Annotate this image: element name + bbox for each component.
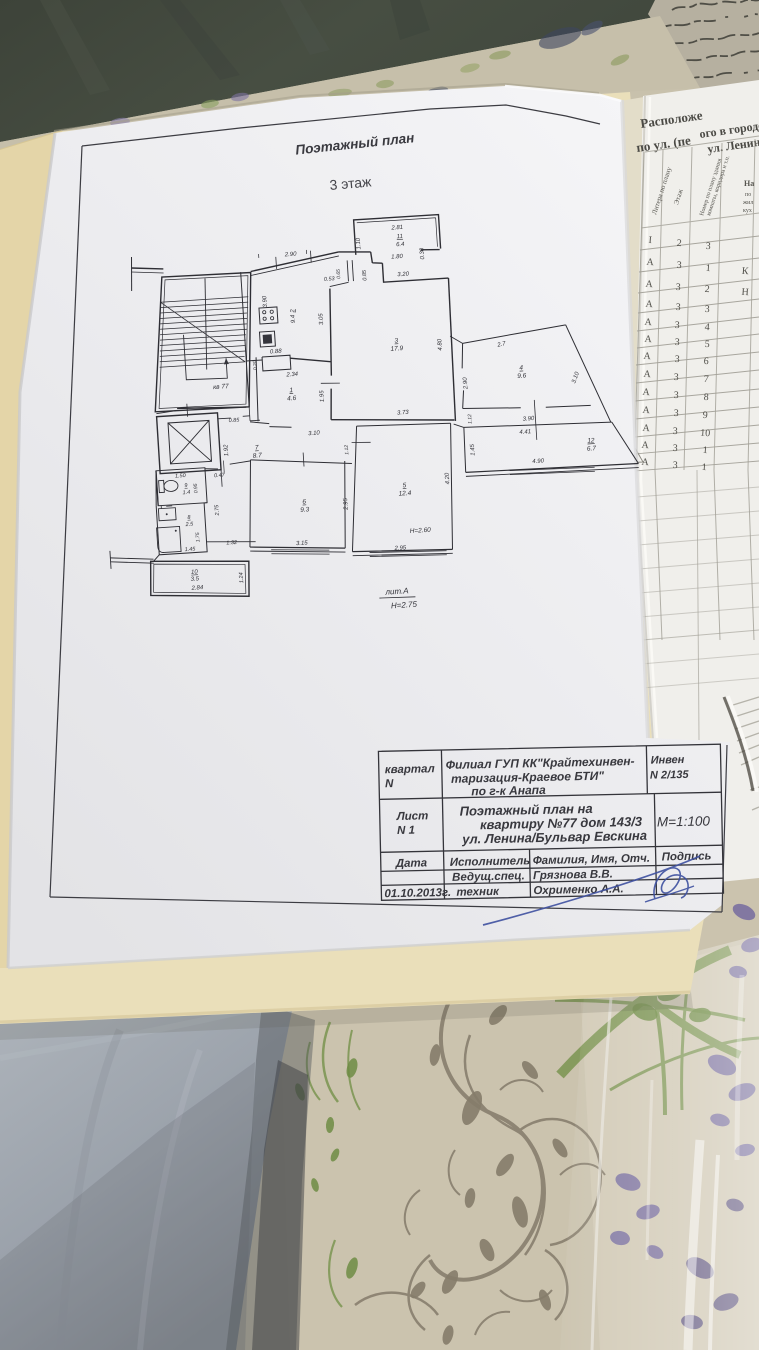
svg-text:3.90: 3.90: [262, 295, 269, 308]
svg-text:Исполнитель: Исполнитель: [450, 855, 531, 869]
svg-text:11: 11: [396, 234, 403, 240]
svg-text:10: 10: [700, 428, 711, 440]
svg-text:2.84: 2.84: [190, 585, 204, 592]
svg-text:1.12: 1.12: [344, 445, 351, 455]
svg-text:2.81: 2.81: [390, 225, 403, 232]
svg-text:3: 3: [672, 426, 678, 437]
svg-text:3.10: 3.10: [308, 430, 321, 437]
svg-text:3: 3: [673, 390, 679, 401]
svg-text:3: 3: [704, 304, 710, 315]
svg-text:N 2/135: N 2/135: [650, 769, 690, 782]
svg-text:3: 3: [675, 282, 681, 293]
svg-text:1: 1: [701, 462, 707, 473]
svg-text:0.88: 0.88: [270, 349, 283, 356]
svg-text:0.53: 0.53: [324, 276, 336, 283]
svg-text:Грязнова В.В.: Грязнова В.В.: [533, 868, 613, 882]
svg-text:К: К: [741, 266, 749, 277]
svg-text:2.5: 2.5: [184, 522, 194, 529]
svg-text:12: 12: [587, 437, 595, 444]
svg-text:1.32: 1.32: [226, 540, 237, 547]
svg-text:Н=2.75: Н=2.75: [391, 600, 418, 611]
svg-text:5: 5: [704, 339, 710, 350]
svg-text:0.47: 0.47: [214, 472, 226, 479]
svg-text:кв 77: кв 77: [213, 383, 229, 391]
svg-text:1.45: 1.45: [184, 546, 196, 553]
svg-text:01.10.2013г.: 01.10.2013г.: [384, 887, 451, 900]
svg-text:жил: жил: [742, 200, 753, 206]
svg-text:1.24: 1.24: [239, 572, 246, 583]
svg-text:3.90: 3.90: [522, 416, 535, 423]
svg-text:Дата: Дата: [395, 857, 428, 870]
svg-text:лит.А: лит.А: [384, 586, 409, 596]
svg-text:4: 4: [704, 322, 710, 333]
svg-text:М=1:100: М=1:100: [657, 813, 711, 829]
svg-text:0.95: 0.95: [193, 483, 200, 493]
svg-text:1.50: 1.50: [175, 473, 187, 480]
svg-text:техник: техник: [456, 886, 500, 899]
svg-text:2.34: 2.34: [285, 372, 299, 379]
svg-text:1.12: 1.12: [467, 414, 474, 424]
svg-text:0.20: 0.20: [252, 360, 259, 370]
svg-text:1.45: 1.45: [470, 443, 477, 456]
svg-text:2: 2: [704, 284, 710, 295]
svg-text:2.90: 2.90: [284, 252, 298, 259]
svg-text:Н: Н: [741, 287, 749, 298]
svg-text:по: по: [745, 192, 751, 198]
svg-text:10: 10: [191, 569, 199, 575]
svg-text:Лист: Лист: [396, 810, 429, 823]
svg-text:3: 3: [674, 320, 680, 331]
svg-text:3: 3: [674, 354, 680, 365]
svg-text:3: 3: [673, 408, 679, 419]
svg-text:Ведущ.спец.: Ведущ.спец.: [452, 870, 525, 884]
svg-text:9.6: 9.6: [517, 372, 527, 380]
svg-text:1.95: 1.95: [319, 390, 326, 403]
svg-text:3.20: 3.20: [397, 272, 410, 279]
svg-text:по г-к Анапа: по г-к Анапа: [471, 783, 546, 799]
svg-text:0.85: 0.85: [362, 269, 369, 281]
svg-text:0.30: 0.30: [419, 247, 426, 260]
svg-text:3.15: 3.15: [296, 540, 309, 547]
svg-text:Охрименко А.А.: Охрименко А.А.: [533, 883, 624, 897]
svg-text:0.85: 0.85: [228, 417, 240, 424]
svg-text:2.95: 2.95: [343, 497, 350, 511]
svg-text:N 1: N 1: [397, 825, 415, 837]
svg-text:1.80: 1.80: [391, 254, 404, 261]
svg-text:3: 3: [673, 372, 679, 383]
svg-text:9: 9: [184, 483, 187, 489]
svg-text:1: 1: [702, 445, 708, 456]
svg-text:6.7: 6.7: [587, 445, 597, 453]
svg-text:12.4: 12.4: [398, 490, 411, 498]
svg-text:9.3: 9.3: [300, 506, 310, 514]
svg-text:4.90: 4.90: [532, 458, 545, 465]
svg-text:Фамилия, Имя, Отч.: Фамилия, Имя, Отч.: [533, 853, 650, 867]
svg-text:6: 6: [703, 356, 709, 367]
svg-text:8.7: 8.7: [253, 452, 263, 460]
svg-text:8: 8: [703, 392, 709, 403]
svg-text:4.80: 4.80: [437, 338, 444, 351]
svg-text:3: 3: [672, 460, 678, 471]
svg-text:0.65: 0.65: [336, 269, 343, 279]
svg-text:1.92: 1.92: [223, 444, 230, 457]
svg-text:9.4: 9.4: [290, 314, 297, 323]
svg-text:2.75: 2.75: [214, 504, 221, 517]
svg-text:3: 3: [676, 260, 682, 271]
svg-text:кух: кух: [743, 208, 752, 214]
svg-text:2: 2: [676, 238, 682, 249]
svg-text:На: На: [744, 179, 754, 188]
svg-text:3.73: 3.73: [397, 410, 410, 417]
svg-text:1.10: 1.10: [356, 237, 363, 250]
svg-text:2.90: 2.90: [463, 377, 470, 391]
svg-text:3: 3: [675, 302, 681, 313]
svg-text:квартал: квартал: [385, 763, 435, 776]
svg-text:H=2.60: H=2.60: [409, 527, 431, 535]
svg-text:6.4: 6.4: [396, 242, 405, 249]
svg-text:4.6: 4.6: [287, 395, 297, 403]
svg-text:3: 3: [672, 443, 678, 454]
svg-text:3: 3: [674, 337, 680, 348]
svg-text:1.75: 1.75: [195, 532, 202, 542]
svg-text:3.05: 3.05: [318, 312, 325, 325]
svg-text:N: N: [385, 778, 394, 790]
svg-text:3: 3: [705, 241, 711, 252]
svg-text:7: 7: [703, 374, 709, 385]
svg-text:9: 9: [702, 410, 708, 421]
svg-text:17.9: 17.9: [390, 345, 403, 353]
svg-text:4.41: 4.41: [519, 429, 531, 436]
svg-text:1: 1: [705, 263, 711, 274]
svg-text:1.4: 1.4: [182, 490, 190, 496]
svg-text:2.95: 2.95: [393, 545, 407, 552]
svg-text:3.5: 3.5: [191, 576, 200, 583]
svg-text:Инвен: Инвен: [651, 754, 685, 767]
svg-text:4.20: 4.20: [445, 472, 452, 485]
